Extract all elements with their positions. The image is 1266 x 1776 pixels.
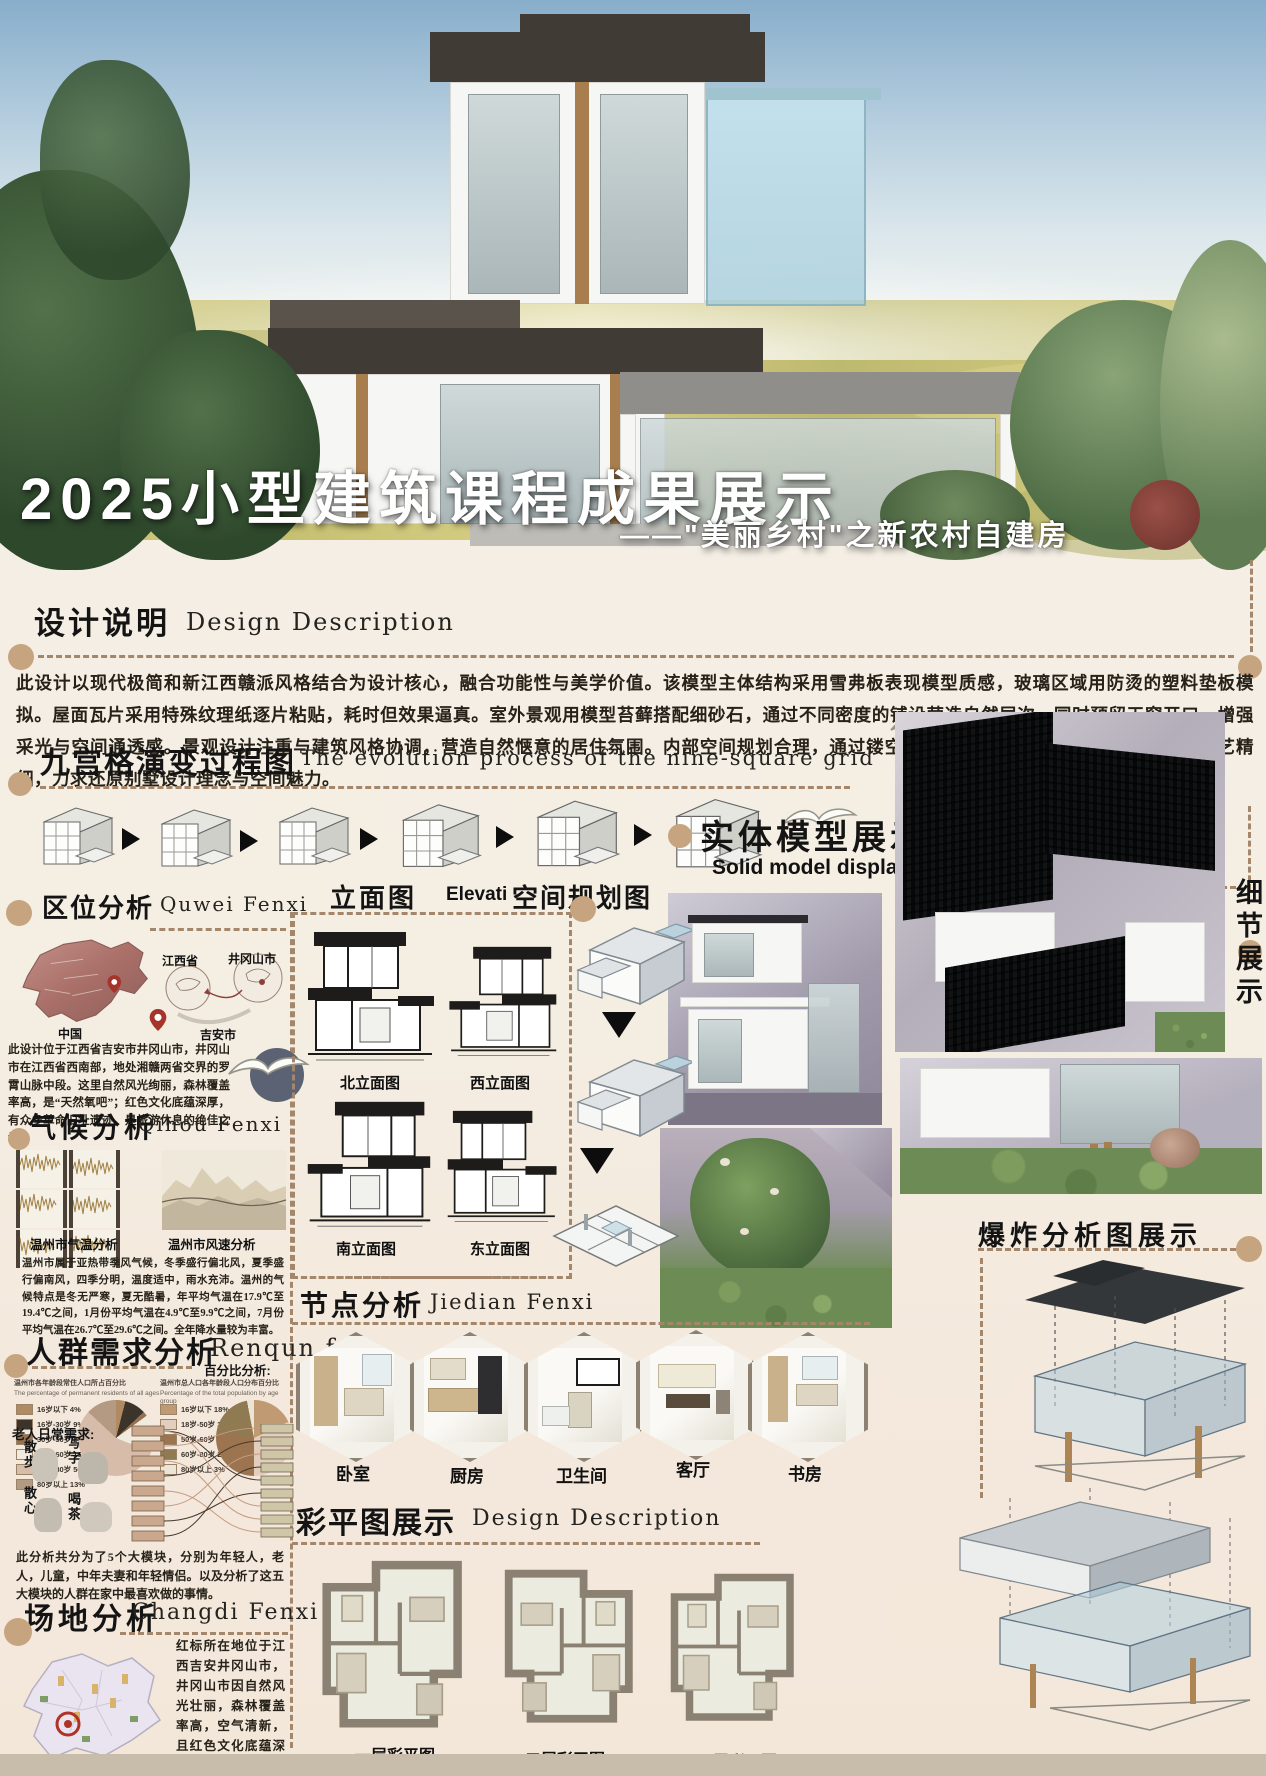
location-heading-cn: 区位分析 [42, 888, 154, 925]
arrow-down-icon [580, 1148, 614, 1174]
color-plan-heading-en: Design Description [472, 1506, 721, 1531]
elder-activity-figure [34, 1498, 62, 1532]
nine-grid-step-5 [522, 792, 626, 880]
climate-chart-wind [162, 1150, 286, 1230]
elevation-north [306, 926, 438, 1068]
arrow-right-icon [360, 828, 378, 850]
solid-model-heading-en: Solid model display [712, 856, 909, 880]
room-label-kitchen: 厨房 [422, 1462, 512, 1487]
footer-band [0, 1754, 1266, 1776]
pie-legend-item: 16岁以下 18% [160, 1404, 232, 1415]
nine-grid-step-2 [148, 802, 236, 880]
nine-grid-step-3 [266, 800, 354, 878]
room-hex-kitchen [410, 1332, 530, 1462]
climate-heading-en: Qihou Fenxi [138, 1112, 282, 1136]
arrow-down-icon [602, 1012, 636, 1038]
elevation-label-west: 西立面图 [450, 1072, 550, 1093]
nine-grid-heading-en: The evolution process of the nine-square… [300, 746, 875, 770]
model-photo-tree [660, 1128, 892, 1328]
room-label-study: 书房 [760, 1460, 850, 1485]
house-mid-roof [268, 328, 763, 374]
room-hex-livingroom [636, 1330, 756, 1460]
hero-render: 2025小型建筑课程成果展示 ——"美丽乡村"之新农村自建房 [0, 0, 1266, 558]
poster-subtitle: ——"美丽乡村"之新农村自建房 [620, 512, 1070, 554]
arrow-right-icon [634, 824, 652, 846]
elevation-east [446, 1102, 560, 1232]
elder-activity-figure [32, 1448, 58, 1482]
needs-connection-diagram [130, 1424, 295, 1549]
exploded-diagram-1 [995, 1256, 1260, 1506]
pie2-caption-cn: 温州市总人口各年龄段人口分布百分比 [160, 1380, 290, 1389]
node-heading-cn: 节点分析 [300, 1284, 424, 1324]
floor-plan-3 [658, 1560, 808, 1736]
house-terrace-roof [620, 372, 1020, 414]
model-photo-roofs [895, 712, 1225, 1052]
elevation-label-south: 南立面图 [316, 1238, 416, 1259]
site-heading-en: Changdi Fenxi [132, 1600, 319, 1625]
map-label-jiangxi: 江西省 [162, 952, 198, 969]
pie1-caption-en: The percentage of permanent residents of… [14, 1390, 164, 1398]
map-label-jian: 吉安市 [200, 1026, 236, 1043]
elevation-label-east: 东立面图 [450, 1238, 550, 1259]
map-label-jinggangshan: 井冈山市 [228, 950, 276, 967]
design-description-heading-cn: 设计说明 [34, 598, 170, 643]
arrow-right-icon [240, 830, 258, 852]
pie-legend-item: 16岁以下 4% [16, 1404, 88, 1415]
nine-grid-step-1 [30, 800, 118, 878]
location-pin-icon [148, 1008, 168, 1032]
poster: 2025小型建筑课程成果展示 ——"美丽乡村"之新农村自建房 设计说明 Desi… [0, 0, 1266, 1776]
pie1-caption-cn: 温州市各年龄段常住人口所占百分比 [14, 1380, 164, 1389]
node-heading-en: Jiedian Fenxi [430, 1290, 594, 1314]
model-photo-garden [900, 1058, 1262, 1194]
elevation-heading-cn: 立面图 [330, 878, 417, 915]
red-bush [1130, 480, 1200, 550]
climate-heading-cn: 气候分析 [28, 1106, 156, 1146]
glass-cube [706, 96, 866, 306]
climate-caption-right: 温州市风速分析 [168, 1234, 256, 1253]
arrow-right-icon [496, 826, 514, 848]
room-hex-bathroom [524, 1332, 644, 1462]
massing-step-2 [572, 1050, 692, 1142]
elevation-south [302, 1096, 434, 1234]
china-map [8, 930, 158, 1040]
color-plan-heading-cn: 彩平图展示 [296, 1498, 456, 1542]
climate-chart-temperature [16, 1150, 152, 1230]
nine-grid-step-4 [388, 796, 488, 880]
massing-step-3 [544, 1190, 684, 1280]
design-description-heading-en: Design Description [186, 608, 455, 636]
room-hex-study [748, 1332, 868, 1462]
floor-plan-1 [308, 1550, 478, 1740]
site-map [12, 1640, 170, 1770]
solid-model-heading-cn: 实体模型展示 [700, 810, 928, 859]
climate-caption-left: 温州市气温分析 [30, 1234, 118, 1253]
elder-activity-figure [78, 1452, 108, 1484]
elder-activity-figure [80, 1502, 112, 1532]
room-label-bathroom: 卫生间 [534, 1462, 629, 1487]
nine-grid-heading-cn: 九宫格演变过程图 [40, 738, 296, 782]
model-photo-front [668, 893, 882, 1125]
arrow-right-icon [122, 828, 140, 850]
map-label-china: 中国 [58, 1025, 82, 1042]
room-label-livingroom: 客厅 [648, 1456, 738, 1481]
location-heading-en: Quwei Fenxi [160, 892, 308, 916]
elevation-label-north: 北立面图 [320, 1072, 420, 1093]
massing-step-1 [572, 918, 692, 1010]
floor-plan-2 [490, 1556, 646, 1738]
room-label-bedroom: 卧室 [308, 1460, 398, 1485]
elevation-west [446, 938, 558, 1066]
exploded-diagram-2 [930, 1478, 1262, 1744]
percent-analysis-label: 百分比分析: [204, 1360, 271, 1379]
detail-display-heading: 细节展示 [1228, 878, 1266, 1058]
